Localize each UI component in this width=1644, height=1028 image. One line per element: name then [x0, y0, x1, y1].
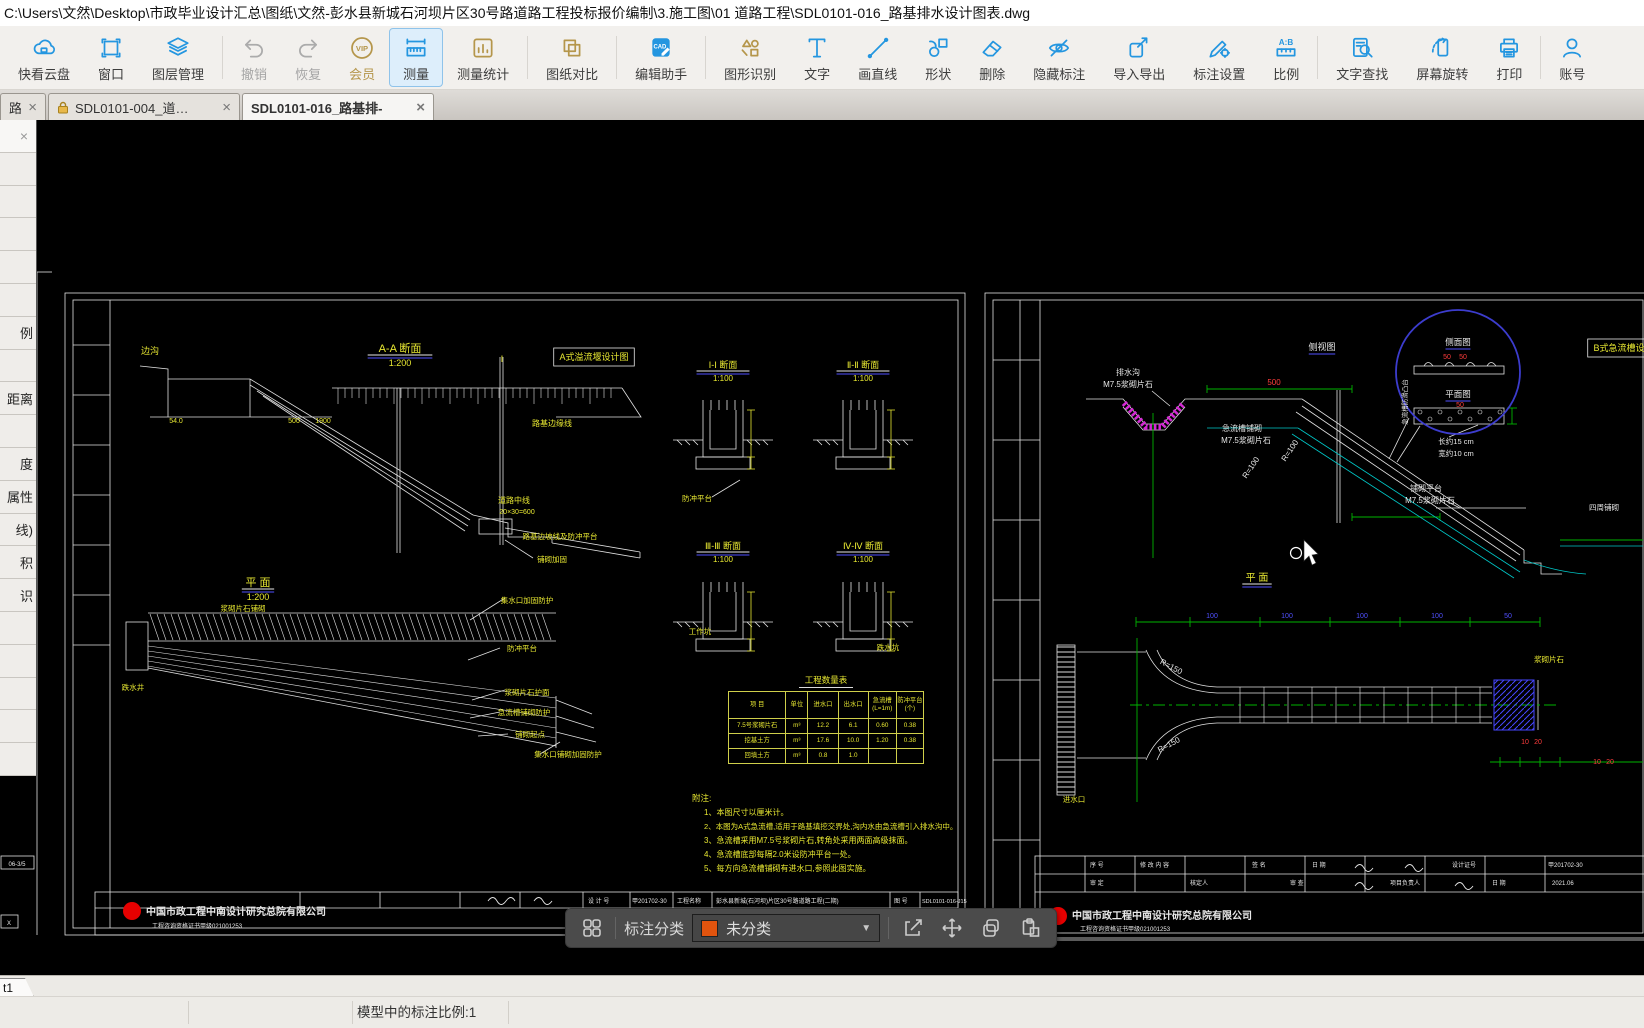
cad-label: 工程咨询资格证书甲级021001253: [1080, 925, 1171, 933]
divider: [888, 917, 889, 939]
measure-panel-item-属性[interactable]: 属性: [0, 481, 36, 514]
rotate-icon: [1429, 33, 1455, 63]
cad-label: 500: [1267, 378, 1281, 387]
cad-label: R=150: [1156, 735, 1182, 754]
toolbar-button-label: 屏幕旋转: [1416, 64, 1468, 83]
qty-cell: 1.20: [868, 734, 896, 749]
toolbar-button-label: 画直线: [858, 64, 897, 83]
cadhelper-icon: CAD: [648, 33, 674, 63]
cad-label: 边沟: [141, 345, 159, 356]
cad-label: 2021.06: [1552, 881, 1574, 887]
toolbar-button-line[interactable]: 画直线: [844, 28, 911, 87]
annotset-icon: [1206, 33, 1232, 63]
toolbar-button-label: 图层管理: [152, 64, 204, 83]
toolbar-button-label: 图形识别: [724, 64, 776, 83]
toolbar-button-compare[interactable]: 图纸对比: [532, 28, 612, 87]
cad-label: 5、每方向急流槽铺砌有进水口,参照此图实施。: [704, 863, 871, 873]
document-tab-bar: 路…×SDL0101-004_道…×SDL0101-016_路基排-×: [0, 90, 1644, 120]
measure-panel-item-识[interactable]: 识: [0, 579, 36, 612]
cad-label: 长约15 cm: [1438, 436, 1473, 446]
cad-label: 4、急流槽底部每隔2.0米设防冲平台一处。: [704, 849, 856, 859]
cad-label: 日 期: [1312, 861, 1326, 869]
cad-label: A-A 断面: [379, 341, 422, 355]
measure-panel-item: [0, 153, 36, 186]
cad-label: 跌水坑: [877, 642, 900, 652]
svg-text:A:B: A:B: [1279, 37, 1294, 46]
toolbar-button-recognize[interactable]: 图形识别: [710, 28, 790, 87]
cad-masonry-hatch: [1124, 403, 1184, 427]
cad-label: 甲201702-30: [632, 898, 667, 905]
quantity-table-title: 工程数量表: [728, 674, 924, 686]
toolbar-button-label: 文字: [804, 64, 830, 83]
measure-panel-item: [0, 678, 36, 711]
annotation-scale-text: 模型中的标注比例:1: [357, 997, 476, 1028]
svg-text:VIP: VIP: [356, 44, 368, 53]
measure-panel-item: [0, 350, 36, 383]
cad-label: M7.5浆砌片石: [1405, 495, 1455, 505]
toolbar: 快看云盘窗口图层管理撤销恢复VIP会员测量测量统计图纸对比CAD编辑助手图形识别…: [0, 26, 1644, 90]
toolbar-button-shape[interactable]: 形状: [911, 28, 965, 87]
cad-label: 1:100: [713, 555, 734, 564]
qty-cell: 1.0: [838, 749, 868, 764]
cad-label: 修 改 内 容: [1140, 861, 1169, 869]
measure-icon: [403, 33, 429, 63]
qty-cell: [868, 749, 896, 764]
measure-panel-item-积[interactable]: 积: [0, 546, 36, 579]
toolbar-button-erase[interactable]: 删除: [965, 28, 1019, 87]
toolbar-button-layers[interactable]: 图层管理: [138, 28, 218, 87]
qty-cell: 0.60: [868, 719, 896, 734]
cad-label: 浆砌片石: [1534, 654, 1564, 664]
toolbar-button-label: 撤销: [241, 64, 267, 83]
category-color-swatch: [701, 920, 718, 937]
cad-label: 500: [288, 418, 300, 425]
measure-panel-item: [0, 218, 36, 251]
measure-panel-item: [0, 415, 36, 448]
cad-label: Ⅲ-Ⅲ 断面: [705, 540, 741, 551]
cad-label: 100: [1431, 613, 1443, 620]
cad-label: 进水口: [1063, 794, 1086, 804]
cad-label: 100: [1281, 613, 1293, 620]
annotation-toolbar: 标注分类 未分类 ▼: [565, 908, 1057, 948]
cad-label: 20: [1534, 739, 1542, 746]
annotation-category-label: 标注分类: [624, 918, 684, 939]
toolbar-button-label: 窗口: [98, 64, 124, 83]
chevron-down-icon: ▼: [861, 923, 871, 934]
toolbar-button-measure[interactable]: 测量: [389, 28, 443, 87]
text-icon: [804, 33, 830, 63]
toolbar-button-label: 文字查找: [1336, 64, 1388, 83]
cad-label: R=100: [1241, 455, 1262, 480]
toolbar-divider: [616, 36, 617, 79]
qty-row: 回填土方m³0.81.0: [729, 749, 924, 764]
document-tab-3[interactable]: SDL0101-016_路基排-×: [242, 93, 434, 120]
cad-label: 工程名称: [677, 897, 701, 905]
toolbar-button-window[interactable]: 窗口: [84, 28, 138, 87]
cad-label: 侧视图: [1308, 341, 1335, 352]
cad-label: 平 面: [1246, 573, 1269, 584]
cad-label: B式急流槽设计图: [1593, 342, 1644, 353]
toolbar-divider: [1540, 36, 1541, 79]
importexport-icon: [1126, 33, 1152, 63]
measure-panel-item: [0, 710, 36, 743]
toolbar-button-label: 快看云盘: [18, 64, 70, 83]
toolbar-button-label: 标注设置: [1193, 64, 1245, 83]
qty-header-cell: 防冲平台 (个): [896, 692, 923, 719]
hide-icon: [1046, 33, 1072, 63]
cad-label: 甲201702-30: [1548, 862, 1583, 869]
cad-label: 铺砌起点: [515, 729, 545, 739]
cad-label: 100: [1206, 613, 1218, 620]
tab-label: SDL0101-016_路基排-: [251, 98, 409, 117]
drawing-canvas-area[interactable]: A-A 断面1:200A式溢流堰设计图边沟Ⅰ路基边缘线54.05001900道路…: [0, 120, 1644, 975]
cad-label: 道路中线: [498, 495, 530, 505]
qty-header-cell: 项 目: [729, 692, 786, 719]
cad-label: 1900: [315, 418, 331, 425]
status-bar: 模型中的标注比例:1: [0, 996, 1644, 1028]
dropdown-value: 未分类: [726, 918, 771, 939]
cad-label: 集水口铺砌加固防护: [534, 749, 602, 759]
cad-label: 10: [1521, 739, 1529, 746]
cad-label: 审 定: [1090, 879, 1104, 887]
toolbar-button-label: 删除: [979, 64, 1005, 83]
toolbar-button-ratio[interactable]: A:B比例: [1259, 28, 1313, 87]
measure-panel-item-线)[interactable]: 线): [0, 514, 36, 547]
cad-label: 10: [1593, 759, 1601, 766]
toolbar-button-undo[interactable]: 撤销: [227, 28, 281, 87]
cad-label: 中国市政工程中南设计研究总院有限公司: [1072, 909, 1252, 922]
cad-label: 铺砌加固: [537, 554, 567, 564]
cad-label: Ⅰ-Ⅰ 断面: [709, 359, 738, 370]
paste-icon[interactable]: [1015, 913, 1046, 943]
cad-label: M7.5浆砌片石: [1221, 435, 1271, 445]
qty-cell: 挖基土方: [729, 734, 786, 749]
cad-label: 54.0: [169, 418, 183, 425]
toolbar-divider: [1317, 36, 1318, 79]
qty-header-cell: 进水口: [808, 692, 838, 719]
compare-icon: [559, 33, 585, 63]
qty-row: 挖基土方m³17.610.01.200.38: [729, 734, 924, 749]
toolbar-button-print[interactable]: 打印: [1482, 28, 1536, 87]
mouse-cursor: [1291, 540, 1319, 565]
panel-close-row[interactable]: ×: [0, 120, 36, 153]
status-divider: [188, 1001, 189, 1024]
qty-header-cell: 出水口: [838, 692, 868, 719]
qty-cell: m³: [786, 734, 808, 749]
vip-icon: VIP: [349, 33, 375, 63]
toolbar-button-label: 编辑助手: [635, 64, 687, 83]
copy-icon[interactable]: [976, 913, 1007, 943]
cad-label: 浆砌片石护面: [505, 687, 550, 697]
cad-label: 1、本图尺寸以厘米计。: [704, 807, 788, 817]
cad-label: 日 期: [1492, 879, 1506, 887]
toolbar-button-annotset[interactable]: 标注设置: [1179, 28, 1259, 87]
cad-label: M7.5浆砌片石: [1103, 379, 1153, 389]
toolbar-divider: [705, 36, 706, 79]
measure-panel-strip: ×例距离度属性线)积识: [0, 120, 37, 776]
cad-label: 急流槽铺砌: [1222, 423, 1262, 433]
cad-green-lines: [1130, 385, 1643, 802]
cad-label: 铺砌平台: [1410, 483, 1442, 493]
measure-panel-item-例[interactable]: 例: [0, 317, 36, 350]
cad-label: 平 面: [245, 577, 270, 589]
close-icon[interactable]: ×: [28, 100, 37, 115]
quantity-table-grid: 项 目单位进水口出水口急流槽 (L=1m)防冲平台 (个)7.5号浆砌片石m³1…: [728, 691, 924, 764]
cad-label: 四周铺砌: [1589, 502, 1619, 512]
cad-label: 排水沟: [1116, 367, 1140, 377]
cad-label: 防冲平台: [682, 493, 712, 503]
measure-panel-item: [0, 186, 36, 219]
measure-panel-item: [0, 645, 36, 678]
cad-label: 集水口加固防护: [501, 595, 554, 605]
export-annotation-icon[interactable]: [897, 913, 928, 943]
toolbar-button-vip[interactable]: VIP会员: [335, 28, 389, 87]
qty-cell: [896, 749, 923, 764]
qty-cell: 0.38: [896, 719, 923, 734]
toolbar-button-text[interactable]: 文字: [790, 28, 844, 87]
cad-label: Ⅳ-Ⅳ 断面: [843, 540, 883, 551]
document-tab-2[interactable]: SDL0101-004_道…×: [48, 93, 240, 120]
line-icon: [865, 33, 891, 63]
cad-label: 防冲平台: [507, 643, 537, 653]
toolbar-divider: [527, 36, 528, 79]
move-icon[interactable]: [936, 913, 967, 943]
cad-label: 1:200: [247, 592, 270, 602]
toolbar-button-label: 打印: [1496, 64, 1522, 83]
toolbar-button-label: 形状: [925, 64, 951, 83]
document-tab-1[interactable]: 路…×: [0, 93, 46, 120]
toolbar-button-label: 会员: [349, 64, 375, 83]
cad-blue-elements: [1396, 310, 1534, 730]
qty-cell: 6.1: [838, 719, 868, 734]
cad-label: 50: [1456, 402, 1464, 409]
cad-label: 100: [1356, 613, 1368, 620]
redo-icon: [295, 33, 321, 63]
erase-icon: [979, 33, 1005, 63]
cad-label: 工程咨询资格证书甲级021001253: [152, 922, 243, 930]
status-divider: [352, 1001, 353, 1024]
window-icon: [98, 33, 124, 63]
qty-cell: m³: [786, 719, 808, 734]
cad-label: 中国市政工程中南设计研究总院有限公司: [146, 905, 326, 918]
toolbar-button-redo[interactable]: 恢复: [281, 28, 335, 87]
account-icon: [1559, 33, 1585, 63]
qty-header-cell: 单位: [786, 692, 808, 719]
qty-cell: 12.2: [808, 719, 838, 734]
cad-text-labels: A-A 断面1:200A式溢流堰设计图边沟Ⅰ路基边缘线54.05001900道路…: [7, 337, 1644, 933]
cad-label: 审 查: [1290, 879, 1304, 887]
layout-tab-strip: t1: [0, 975, 1644, 996]
cad-label: 彭水县新城(石河坝)片区30号路道路工程(二期): [716, 897, 839, 905]
toolbar-button-findtext[interactable]: 文字查找: [1322, 28, 1402, 87]
toolbar-button-account[interactable]: 账号: [1545, 28, 1599, 87]
toolbar-button-cadhelper[interactable]: CAD编辑助手: [621, 28, 701, 87]
cad-label: 平面图: [1445, 389, 1471, 399]
cad-label: 跌水井: [122, 682, 145, 692]
measure-panel-item-距离[interactable]: 距离: [0, 382, 36, 415]
cad-label: 设 计 号: [588, 897, 609, 905]
cad-label: 侧面图: [1445, 337, 1471, 347]
cad-label: 1:100: [853, 555, 874, 564]
cad-label: 序 号: [1090, 861, 1104, 869]
recognize-icon: [737, 33, 763, 63]
cad-label: 图 号: [894, 898, 908, 905]
quantity-table: 工程数量表 项 目单位进水口出水口急流槽 (L=1m)防冲平台 (个)7.5号浆…: [728, 674, 924, 764]
toolbar-button-label: 图纸对比: [546, 64, 598, 83]
toolbar-button-hide[interactable]: 隐藏标注: [1019, 28, 1099, 87]
toolbar-button-cloud[interactable]: 快看云盘: [4, 28, 84, 87]
toolbar-button-label: 测量统计: [457, 64, 509, 83]
cad-label: 工作坑: [689, 626, 712, 636]
cad-label: 1:100: [853, 374, 874, 383]
toolbar-button-label: 导入导出: [1113, 64, 1165, 83]
cad-label: R=100: [1280, 438, 1301, 463]
apps-grid-icon[interactable]: [576, 913, 607, 943]
toolbar-button-label: 测量: [403, 64, 429, 83]
status-divider: [508, 1001, 509, 1024]
print-icon: [1496, 33, 1522, 63]
ratio-icon: A:B: [1273, 33, 1299, 63]
cad-viewer-app: { "path_bar": { "path": "C:\\Users\\文然\\…: [0, 0, 1644, 1028]
shape-icon: [925, 33, 951, 63]
findtext-icon: [1349, 33, 1375, 63]
close-icon[interactable]: ×: [416, 100, 425, 115]
cad-label: 1:100: [713, 374, 734, 383]
cad-drawing[interactable]: A-A 断面1:200A式溢流堰设计图边沟Ⅰ路基边缘线54.05001900道路…: [0, 120, 1644, 975]
cad-label: 20×30=600: [499, 509, 535, 516]
cad-label: 急流槽铺砌防护: [498, 707, 551, 717]
cad-label: 20: [1606, 759, 1614, 766]
close-icon[interactable]: ×: [222, 100, 231, 115]
cad-label: A式溢流堰设计图: [559, 351, 628, 362]
qty-row: 7.5号浆砌片石m³12.26.10.600.38: [729, 719, 924, 734]
undo-icon: [241, 33, 267, 63]
cad-label: 附注:: [692, 793, 711, 803]
cad-label: 核定人: [1190, 879, 1208, 887]
layout-tab[interactable]: t1: [0, 978, 34, 997]
toolbar-button-label: 账号: [1559, 64, 1585, 83]
qty-cell: 0.38: [896, 734, 923, 749]
stats-icon: [470, 33, 496, 63]
toolbar-button-rotate[interactable]: 屏幕旋转: [1402, 28, 1482, 87]
cad-label: 50: [1443, 354, 1451, 361]
cad-label: X: [7, 921, 11, 927]
tab-label: SDL0101-004_道…: [75, 98, 215, 117]
qty-cell: m³: [786, 749, 808, 764]
cad-label: 急流槽防滑凸台: [1400, 379, 1409, 425]
toolbar-button-label: 比例: [1273, 64, 1299, 83]
toolbar-button-importexport[interactable]: 导入导出: [1099, 28, 1179, 87]
toolbar-divider: [222, 36, 223, 79]
cad-label: 路基边坡线及防冲平台: [523, 531, 598, 541]
qty-cell: 0.8: [808, 749, 838, 764]
measure-panel-item: [0, 743, 36, 776]
cad-label: 3、急流槽采用M7.5号浆砌片石,转角处采用两面高级抹面。: [704, 835, 912, 845]
divider: [615, 917, 616, 939]
cloud-icon: [31, 33, 57, 63]
cad-label: SDL0101-016-J15: [922, 899, 967, 905]
cad-label: 签 名: [1252, 861, 1266, 869]
toolbar-button-label: 恢复: [295, 64, 321, 83]
toolbar-button-stats[interactable]: 测量统计: [443, 28, 523, 87]
cad-label: 50: [1459, 354, 1467, 361]
measure-panel-item: [0, 612, 36, 645]
cad-label: 浆砌片石铺砌: [221, 603, 266, 613]
toolbar-button-label: 隐藏标注: [1033, 64, 1085, 83]
layers-icon: [165, 33, 191, 63]
cad-label: 2、本图为A式急流槽,适用于路基填挖交界处,沟内水由急流槽引入排水沟中。: [704, 821, 957, 831]
cad-label: 路基边缘线: [532, 418, 572, 428]
qty-cell: 7.5号浆砌片石: [729, 719, 786, 734]
qty-header-cell: 急流槽 (L=1m): [868, 692, 896, 719]
svg-text:CAD: CAD: [654, 44, 668, 50]
cad-label: 50: [1504, 613, 1512, 620]
qty-cell: 10.0: [838, 734, 868, 749]
qty-cell: 17.6: [808, 734, 838, 749]
qty-cell: 回填土方: [729, 749, 786, 764]
measure-panel-item: [0, 284, 36, 317]
cad-label: 设计证号: [1452, 861, 1476, 869]
measure-panel-item: [0, 251, 36, 284]
cad-label: 项目负责人: [1390, 879, 1420, 887]
measure-panel-item-度[interactable]: 度: [0, 448, 36, 481]
cad-label: 宽约10 cm: [1438, 448, 1473, 458]
cad-label: Ⅱ-Ⅱ 断面: [847, 359, 879, 370]
file-path-bar: C:\Users\文然\Desktop\市政毕业设计汇总\图纸\文然-彭水县新城…: [0, 0, 1644, 26]
lock-icon: [57, 101, 69, 114]
cad-label: Ⅰ: [501, 354, 504, 364]
cad-label: 06-3/5: [8, 862, 26, 868]
tab-label: 路…: [9, 98, 21, 117]
annotation-category-dropdown[interactable]: 未分类 ▼: [692, 914, 880, 942]
cad-label: 1:200: [389, 358, 412, 368]
